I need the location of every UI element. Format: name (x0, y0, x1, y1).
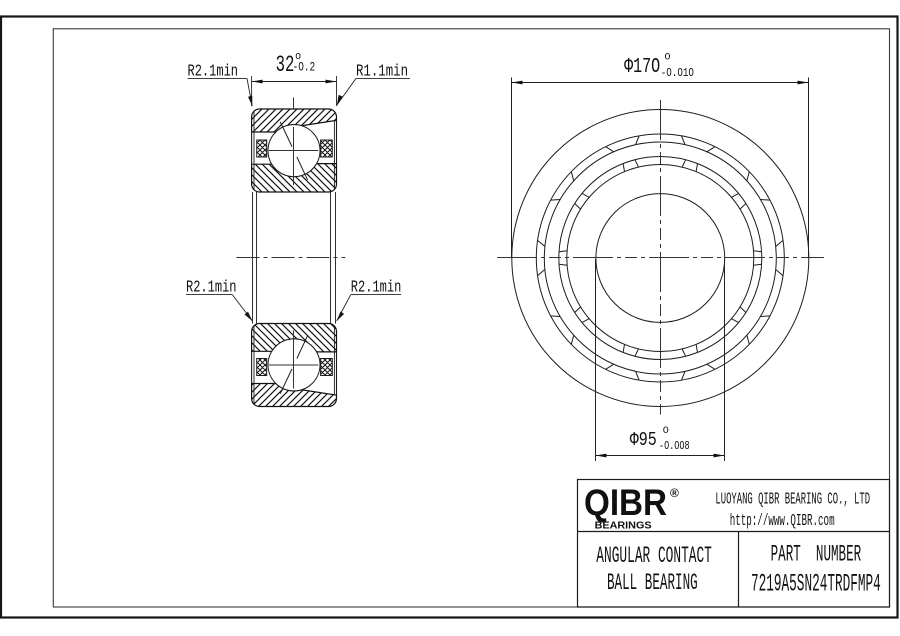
svg-text:LUOYANG QIBR BEARING CO., LTD: LUOYANG QIBR BEARING CO., LTD (715, 489, 870, 508)
svg-text:BALL BEARING: BALL BEARING (607, 570, 698, 596)
svg-text:R2.1min: R2.1min (188, 61, 239, 80)
svg-text:ANGULAR CONTACT: ANGULAR CONTACT (596, 543, 712, 569)
svg-text:-O.OO8: -O.OO8 (659, 439, 690, 453)
svg-text:R2.1min: R2.1min (351, 278, 402, 297)
svg-text:http://www.QIBR.com: http://www.QIBR.com (730, 511, 835, 530)
svg-text:7219A5SN24TRDFMP4: 7219A5SN24TRDFMP4 (751, 570, 881, 599)
svg-text:O: O (665, 53, 671, 64)
svg-text:-O.O1O: -O.O1O (661, 66, 694, 80)
svg-text:BEARINGS: BEARINGS (595, 519, 652, 531)
svg-text:-O.2: -O.2 (293, 60, 316, 75)
svg-text:Φ17O: Φ17O (624, 55, 660, 79)
svg-text:32: 32 (276, 52, 295, 78)
svg-text:Φ95: Φ95 (630, 429, 657, 451)
svg-text:R1.1min: R1.1min (356, 61, 408, 80)
svg-text:PART NUMBER: PART NUMBER (771, 541, 862, 567)
svg-text:O: O (663, 426, 669, 437)
svg-text:®: ® (670, 486, 679, 500)
svg-text:QIBR: QIBR (584, 482, 667, 523)
svg-text:R2.1min: R2.1min (186, 278, 237, 297)
